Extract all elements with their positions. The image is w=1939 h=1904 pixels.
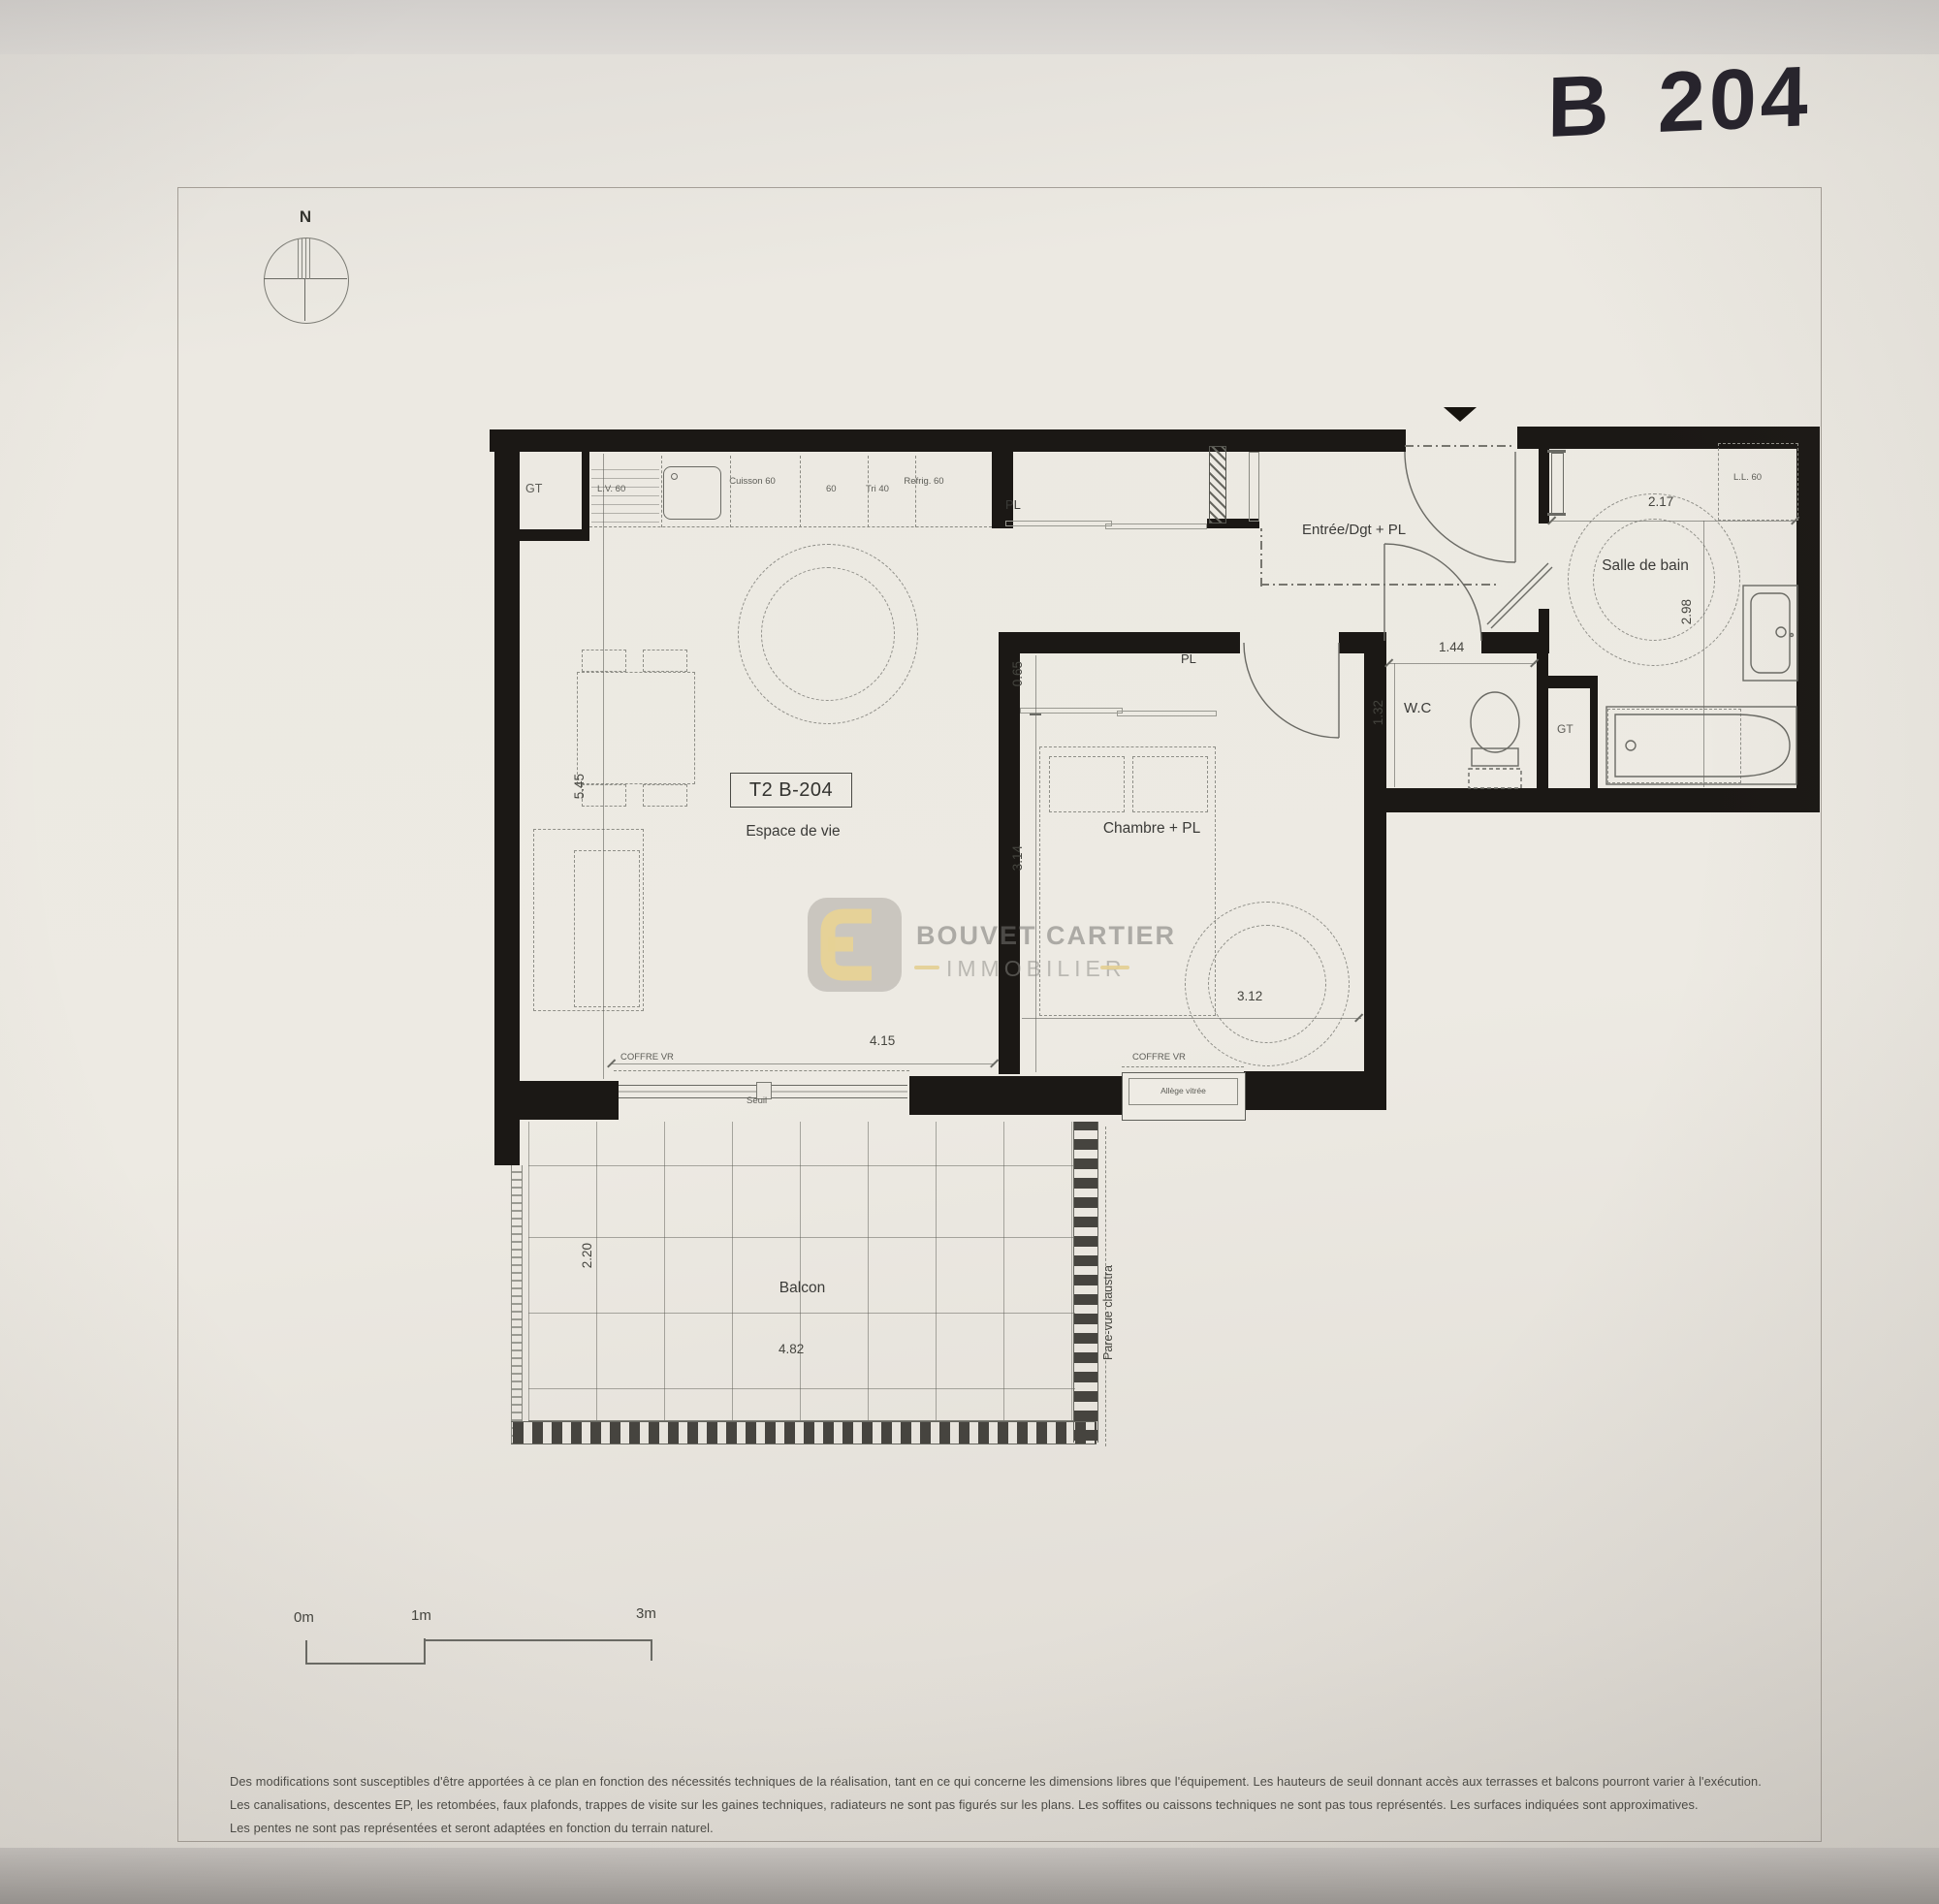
dim-balcony-width: 4.82: [779, 1342, 804, 1356]
kitchen-gt-label: GT: [525, 482, 542, 495]
wall-wc-right: [1537, 632, 1548, 788]
unit60-label: 60: [826, 485, 837, 495]
dim-line-wc-width: [1388, 663, 1536, 664]
fridge-label: Refrig. 60: [900, 477, 948, 488]
wall-entry-bath-lower: [1539, 609, 1549, 634]
counter-divider: [915, 456, 916, 527]
scale-tick: [305, 1640, 307, 1665]
wall-bedroom-top-left: [999, 632, 1240, 653]
wall-living-bottom-left: [514, 1081, 619, 1120]
counter-divider: [661, 456, 662, 527]
balcony-label: Balcon: [756, 1280, 848, 1297]
hall-soffit-dashline-h: [1260, 584, 1498, 586]
dim-line-bath-width: [1551, 521, 1796, 522]
wall-living-hall: [992, 452, 1013, 528]
bed-pillow: [1049, 756, 1125, 812]
bath-turning-circle-inner: [1593, 519, 1715, 641]
bedroom-turning-circle-inner: [1208, 925, 1326, 1043]
counter-divider: [800, 456, 801, 527]
photo-top-band: [0, 0, 1939, 54]
dim-bedroom-height: 3.14: [1010, 845, 1025, 871]
footnote-line-1: Des modifications sont susceptibles d'êt…: [230, 1774, 1762, 1789]
compass-vertical-line: [304, 279, 305, 321]
dim-tick-bedroom-closet: [1030, 714, 1041, 715]
hall-closet-slider-1: [1005, 521, 1112, 526]
scale-3m: 3m: [636, 1605, 656, 1622]
wall-kitchen-gt-right: [582, 452, 589, 533]
scale-0m: 0m: [294, 1609, 314, 1626]
counter-front-edge: [589, 526, 992, 527]
scale-1m: 1m: [411, 1607, 431, 1624]
counter-divider: [868, 456, 869, 527]
footnote-line-2: Les canalisations, descentes EP, les ret…: [230, 1797, 1699, 1812]
living-shutter-dashline: [614, 1070, 909, 1071]
dim-line-bedroom-height: [1035, 655, 1036, 1072]
bed-pillow: [1132, 756, 1208, 812]
dining-table-inner: [761, 567, 895, 701]
bath-gt-label: GT: [1557, 723, 1573, 737]
tri-bin-label: Tri 40: [866, 485, 889, 495]
wall-top-main: [490, 429, 1406, 452]
bathtub-access-zone: [1607, 709, 1741, 783]
kitchen-sink-tap: [671, 473, 678, 480]
dim-living-height: 5.45: [572, 774, 587, 799]
wall-bedroom-bottom-right: [1244, 1071, 1386, 1110]
floor-plan-photo: B 204 N GT L.V. 60 Cuisson 60 60 Tri 40 …: [0, 0, 1939, 1904]
handwritten-unit-ref: B 204: [1547, 47, 1812, 157]
wall-kitchen-gt-bottom: [494, 529, 589, 541]
radiator-cap: [1547, 513, 1566, 516]
chair: [643, 650, 687, 672]
chair: [582, 650, 626, 672]
living-room-label: Espace de vie: [725, 823, 861, 841]
hob-label: Cuisson 60: [729, 477, 776, 488]
watermark-dash-right: [1100, 966, 1129, 969]
bedroom-shutter-dashline: [1122, 1066, 1244, 1067]
watermark-agency-name: BOUVET CARTIER: [916, 921, 1176, 951]
wall-bottom-bathroom: [1364, 788, 1820, 812]
sofa-seat: [574, 850, 640, 1007]
wc-label: W.C: [1404, 700, 1431, 716]
dim-line-living-height: [603, 454, 604, 1079]
dim-line-bedroom-width: [1022, 1018, 1361, 1019]
dim-wc-width: 1.44: [1439, 640, 1464, 654]
privacy-screen-label: Pare-vue claustra: [1101, 1190, 1115, 1360]
scale-segment-high: [424, 1639, 652, 1641]
scale-tick: [651, 1639, 652, 1661]
agency-logo-icon: [808, 898, 902, 992]
hall-closet-slider-2: [1105, 524, 1207, 529]
threshold-label: Seuil: [747, 1096, 767, 1107]
washing-machine-label: L.L. 60: [1733, 473, 1762, 484]
footnote-line-3: Les pentes ne sont pas représentées et s…: [230, 1821, 714, 1835]
scale-tick: [424, 1638, 426, 1665]
watermark-dash-left: [914, 966, 939, 969]
bedroom-closet-slider-2: [1117, 711, 1217, 716]
bedroom-shutter-label: COFFRE VR: [1132, 1053, 1186, 1063]
bedroom-closet-label: PL: [1181, 651, 1196, 666]
glazed-sill-label: Allège vitrée: [1160, 1087, 1206, 1096]
dim-living-width: 4.15: [870, 1033, 895, 1048]
dim-bedroom-closet: 0.65: [1010, 661, 1025, 686]
towel-radiator: [1551, 453, 1564, 515]
wall-bath-gt-right: [1590, 688, 1598, 788]
balcony-bottom-railing: [511, 1421, 1097, 1444]
compass-north-label: N: [296, 207, 315, 227]
balcony-right-railing: [1073, 1122, 1098, 1443]
dim-bath-height: 2.98: [1679, 599, 1694, 624]
agency-watermark: BOUVET CARTIER IMMOBILIER: [808, 898, 1142, 1002]
wall-bath-gt-top: [1548, 676, 1598, 688]
dim-bedroom-width: 3.12: [1237, 989, 1262, 1003]
entry-threshold-dashline: [1405, 445, 1515, 447]
entrance-arrow-icon: [1444, 407, 1477, 422]
dim-line-living-width: [611, 1063, 995, 1064]
compass-north-needle: [298, 238, 312, 279]
chair: [643, 784, 687, 807]
photo-bottom-band: [0, 1848, 1939, 1904]
dim-line-wc-depth: [1394, 663, 1395, 787]
radiator-cap: [1547, 450, 1566, 453]
unit-number-box: T2 B-204: [730, 773, 852, 808]
balcony-left-edge: [511, 1165, 523, 1444]
hall-duct-hatch: [1209, 446, 1226, 524]
hall-soffit-dashline-v: [1260, 528, 1262, 587]
glazed-sill-window: Allège vitrée: [1122, 1072, 1246, 1121]
balcony-tile-grid: [528, 1122, 1075, 1421]
square-table: [577, 672, 695, 784]
hall-closet-panel: [1249, 452, 1259, 522]
hall-closet-label: PL: [1005, 497, 1021, 512]
chair: [582, 784, 626, 807]
dim-balcony-depth: 2.20: [580, 1243, 594, 1268]
wall-right-bathroom: [1796, 427, 1820, 812]
entry-room-label: Entrée/Dgt + PL: [1302, 522, 1406, 538]
dishwasher-label: L.V. 60: [597, 485, 625, 495]
wall-living-bedroom-bottom: [909, 1076, 1122, 1115]
living-shutter-label: COFFRE VR: [620, 1053, 674, 1063]
counter-divider: [730, 456, 731, 527]
watermark-agency-field: IMMOBILIER: [946, 956, 1126, 982]
scale-segment-low: [305, 1663, 425, 1665]
dim-wc-depth: 1.32: [1371, 700, 1385, 725]
dim-bath-width: 2.17: [1648, 494, 1673, 509]
